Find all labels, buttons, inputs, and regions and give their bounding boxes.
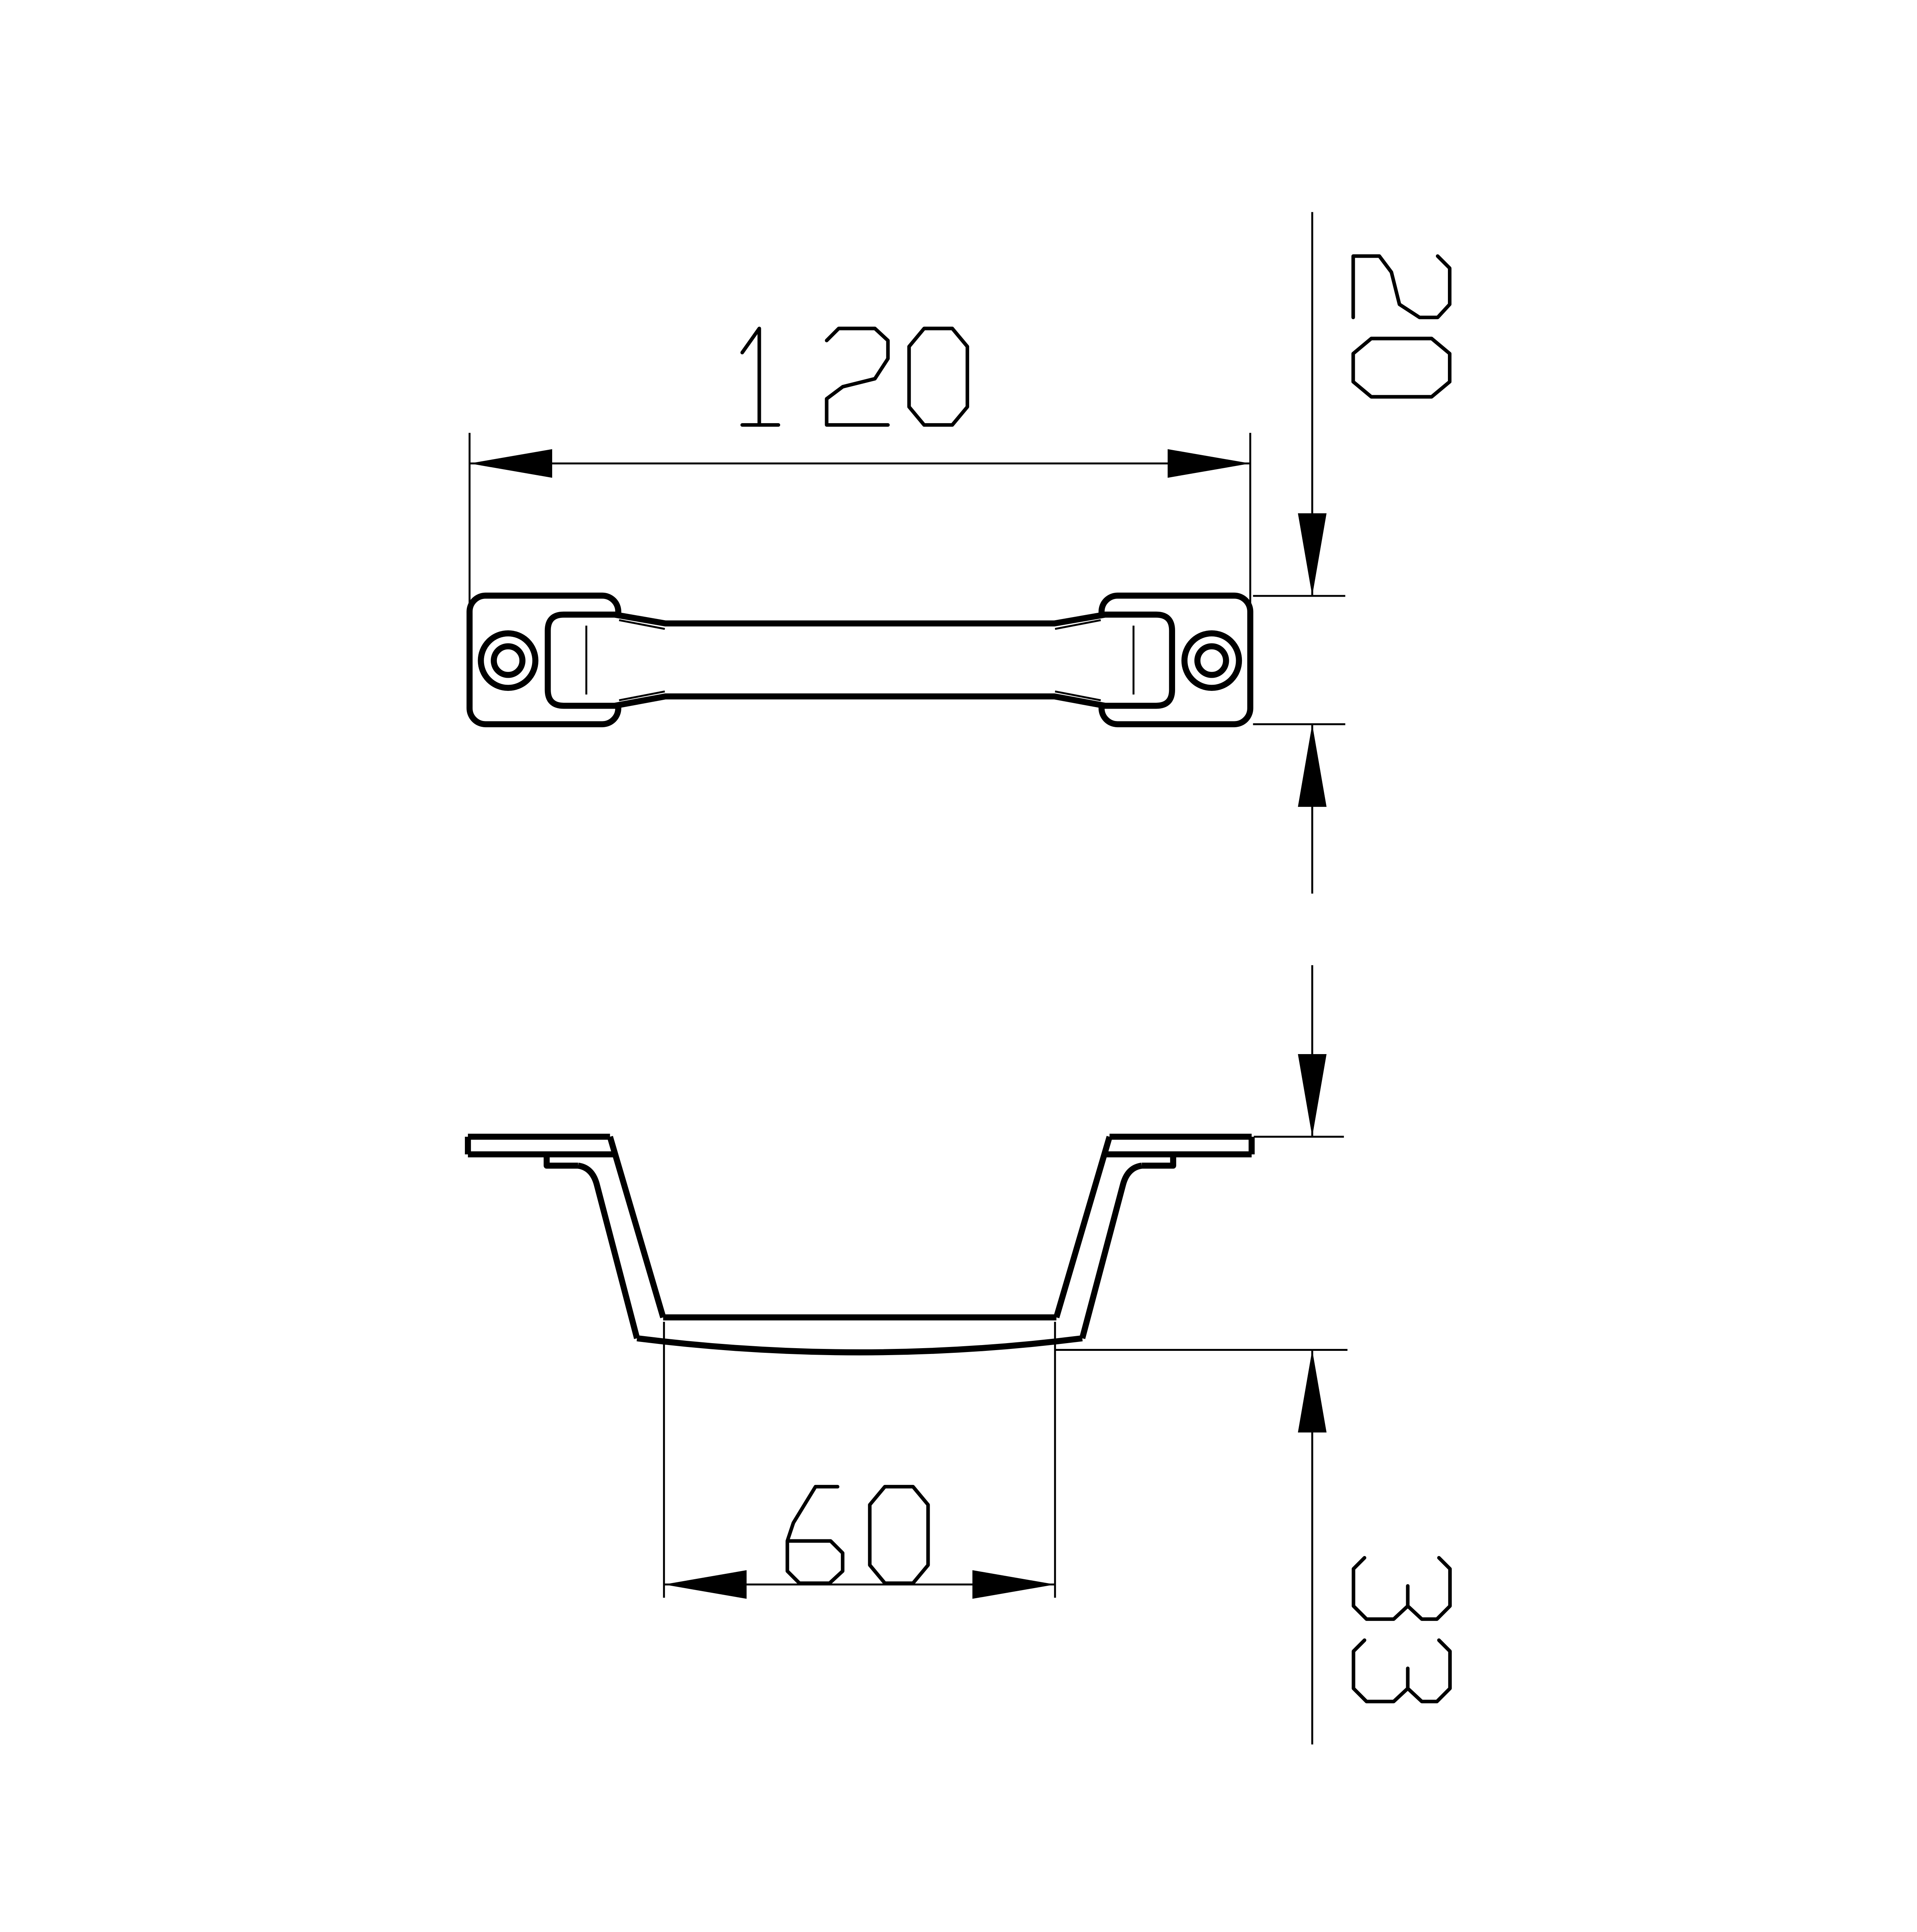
arrowhead-up-icon — [1298, 724, 1327, 807]
arrowhead-down-icon — [1298, 1054, 1327, 1137]
dimension-digit-2 — [1353, 256, 1450, 318]
dimension-digit-3 — [1408, 1558, 1450, 1619]
arrowhead-right-icon — [1168, 449, 1250, 478]
top-view — [469, 595, 1250, 724]
dim-label-33 — [1354, 1558, 1450, 1701]
dimension-end-plate-width — [1253, 212, 1450, 894]
left-screw-hole — [494, 646, 522, 675]
arrowhead-right-icon — [972, 1570, 1055, 1599]
dimension-digit-0 — [909, 328, 968, 425]
dimension-overall-length — [469, 328, 1250, 608]
arrowhead-up-icon — [1298, 1350, 1327, 1432]
side-view — [468, 1137, 1252, 1352]
dimension-digit-6 — [788, 1486, 843, 1583]
drawing-page — [0, 0, 1917, 1932]
technical-drawing-canvas — [0, 0, 1917, 1932]
dimension-digit-2 — [827, 328, 888, 425]
dimension-digit-1 — [742, 328, 759, 425]
dimension-handle-depth — [1056, 965, 1450, 1745]
grip-bottom-sag-curve — [637, 1338, 1082, 1352]
arrowhead-left-icon — [664, 1570, 747, 1599]
dimension-digit-0 — [1353, 338, 1450, 397]
left-leg-near-edge — [610, 1137, 663, 1318]
dim-label-20 — [1353, 256, 1450, 397]
dim-label-120 — [742, 328, 968, 425]
dimension-digit-3 — [1354, 1640, 1408, 1702]
dim-label-60 — [788, 1486, 928, 1583]
dimension-digit-3 — [1354, 1558, 1408, 1619]
arrowhead-left-icon — [469, 449, 552, 478]
dimension-digit-3 — [1408, 1640, 1450, 1702]
right-leg-near-edge — [1056, 1137, 1110, 1318]
grip-bar-outline — [548, 615, 1172, 706]
right-screw-hole — [1197, 646, 1226, 675]
dimension-grip-clearance — [664, 1322, 1055, 1599]
arrowhead-down-icon — [1298, 513, 1327, 596]
dimension-digit-0 — [870, 1486, 928, 1583]
